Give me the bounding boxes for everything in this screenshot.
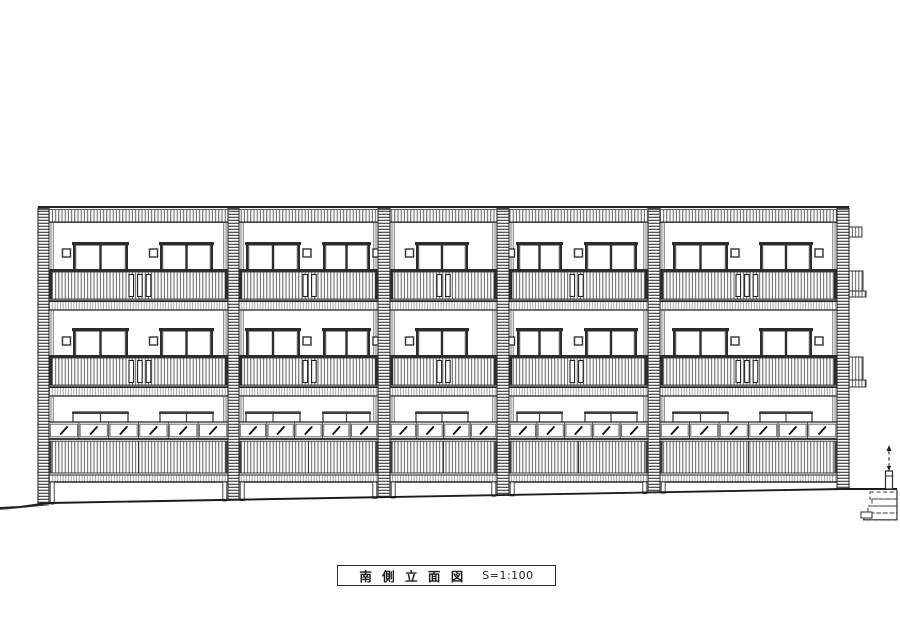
column-6 [837,208,849,489]
drawing-title: 南 側 立 面 図 [359,566,466,585]
title-block: 南 側 立 面 図 S=1:100 [337,565,556,586]
bay-5 [660,210,837,482]
drawing-scale: S=1:100 [482,569,533,582]
south-elevation-drawing [0,0,900,636]
boundary-marker [886,445,893,489]
bay-2 [239,210,381,482]
bay-4 [507,210,649,482]
drawing-sheet: 南 側 立 面 図 S=1:100 [0,0,900,636]
building [0,207,897,520]
column-1 [38,208,49,503]
bay-3 [390,210,497,482]
column-4 [497,208,509,495]
column-5 [648,208,660,492]
column-2 [228,208,239,500]
bay-1 [49,210,228,482]
buried-steps [861,490,897,520]
column-3 [378,208,390,497]
side-balcony-walls [849,227,866,387]
ground-line [0,489,897,508]
